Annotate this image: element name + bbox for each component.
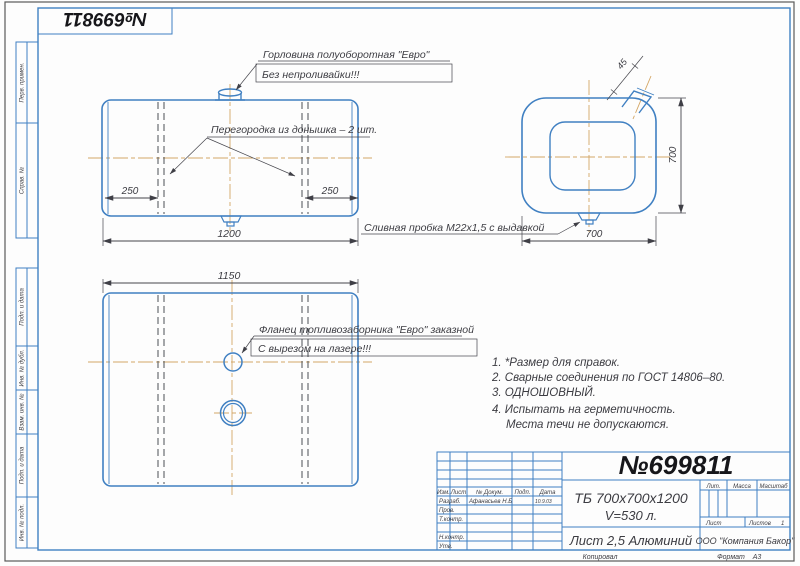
massa-header: Масса [733, 484, 751, 490]
razrab-date: 10.9.03 [535, 499, 552, 505]
margin-cell [27, 390, 38, 434]
note-4-continued: Места течи не допускаются. [506, 419, 669, 431]
row-utv: Утв. [438, 544, 453, 550]
format-value: А3 [752, 554, 762, 561]
margin-label: Подп. и дата [20, 446, 26, 484]
drain-plug [221, 216, 241, 226]
col-doc: № Докум. [476, 489, 503, 496]
note-2: 2. Сварные соединения по ГОСТ 14806–80. [491, 372, 725, 384]
razrab-name: Афанасьев Н.Б [468, 499, 512, 505]
margin-label: Инв. № подл. [19, 504, 26, 541]
neck-callout-title: Горловина полуоборотная "Евро" [263, 49, 431, 61]
row-razrab: Разраб. [439, 499, 461, 505]
leader-arrow [170, 138, 207, 174]
dim-tick [632, 64, 638, 69]
drain-callout-text: Сливная пробка М22х1,5 с выдавкой [364, 222, 545, 234]
drawing-sheet: №699811 Перв. примен. Справ. № Подп. и д… [0, 0, 800, 566]
title-block: №699811 ТБ 700х700х1200 V=530 л. Лист 2,… [437, 450, 795, 550]
flange-callout-note: С вырезом на лазере!!! [258, 343, 371, 355]
side-view: 45 700 700 [505, 56, 686, 246]
baffle-callout: Перегородка из донышка – 2 шт. [170, 124, 377, 176]
drain-callout: Сливная пробка М22х1,5 с выдавкой [361, 222, 580, 234]
margin-label: Справ. № [19, 166, 26, 194]
row-nkontr: Н.контр. [439, 535, 464, 541]
designation: ТБ 700х700х1200 [574, 490, 688, 506]
format-label: Формат [717, 554, 745, 561]
margin-label: Перв. примен. [20, 63, 26, 103]
neck-callout-warning: Без непроливайки!!! [262, 69, 360, 81]
inner-panel-outline [550, 122, 635, 190]
margin-cell [27, 346, 38, 390]
leader-arrow [207, 138, 295, 176]
drain-body [221, 216, 241, 222]
neck-callout: Горловина полуоборотная "Евро" Без непро… [236, 49, 452, 90]
row-prov: Пров. [439, 508, 455, 514]
stamp-number-text: №699811 [63, 8, 147, 29]
margin-cell [27, 434, 38, 497]
material: Лист 2,5 Алюминий [569, 533, 692, 548]
dim-1150: 1150 [218, 270, 241, 282]
margin-cell [27, 123, 38, 238]
volume: V=530 л. [605, 508, 658, 523]
dim-250-right: 250 [321, 186, 339, 197]
margin-cell [27, 42, 38, 123]
margin-label: Подп. и дата [20, 288, 26, 326]
shell-outline [103, 293, 358, 486]
bottom-view: 1150 [88, 270, 372, 498]
baffle-callout-text: Перегородка из донышка – 2 шт. [211, 124, 377, 136]
drawing-canvas: №699811 Перв. примен. Справ. № Подп. и д… [0, 0, 800, 566]
col-list: Лист [450, 490, 466, 496]
margin-cell [27, 268, 38, 346]
kopiroval-label: Копировал [583, 554, 618, 561]
masshtab-header: Масштаб [759, 484, 788, 490]
flange-callout-title: Фланец топливозаборника "Евро" заказной [259, 324, 474, 336]
company-name: ООО "Компания Бакор" [696, 536, 796, 546]
drawing-number: №699811 [619, 450, 734, 480]
footer-strip: Копировал Формат А3 [583, 554, 762, 561]
left-margin-cells: Перв. примен. Справ. № Подп. и дата Инв.… [16, 42, 38, 548]
front-view: 250 250 1200 [88, 84, 372, 246]
listov-value: 1 [781, 521, 784, 527]
margin-cell [27, 497, 38, 548]
col-izm: Изм. [437, 490, 450, 496]
margin-label: Инв. № дубл. [19, 350, 26, 387]
note-1: 1. *Размер для справок. [492, 357, 620, 369]
leader-arrow [558, 222, 580, 234]
technical-notes: 1. *Размер для справок. 2. Сварные соеди… [491, 357, 725, 431]
inverted-number-stamp: №699811 [38, 8, 172, 34]
flange-callout: Фланец топливозаборника "Евро" заказной … [242, 324, 477, 356]
leader-arrow [236, 64, 257, 90]
note-4: 4. Испытать на герметичность. [492, 404, 676, 416]
dim-45: 45 [615, 56, 630, 71]
col-data: Дата [539, 490, 556, 496]
lit-header: Лит. [705, 484, 720, 490]
note-3: 3. ОДНОШОВНЫЙ. [492, 386, 596, 399]
row-tkontr: Т.контр. [439, 517, 463, 523]
leader-arrow [242, 336, 254, 353]
dim-250-left: 250 [121, 186, 139, 197]
dim-700-width: 700 [586, 229, 603, 240]
margin-label: Взам. инв. № [19, 393, 26, 431]
dim-1200: 1200 [217, 228, 241, 240]
list-label: Лист [705, 521, 721, 527]
dim-700-height: 700 [668, 146, 679, 163]
listov-label: Листов [748, 521, 771, 527]
col-podp: Подп. [515, 490, 531, 496]
